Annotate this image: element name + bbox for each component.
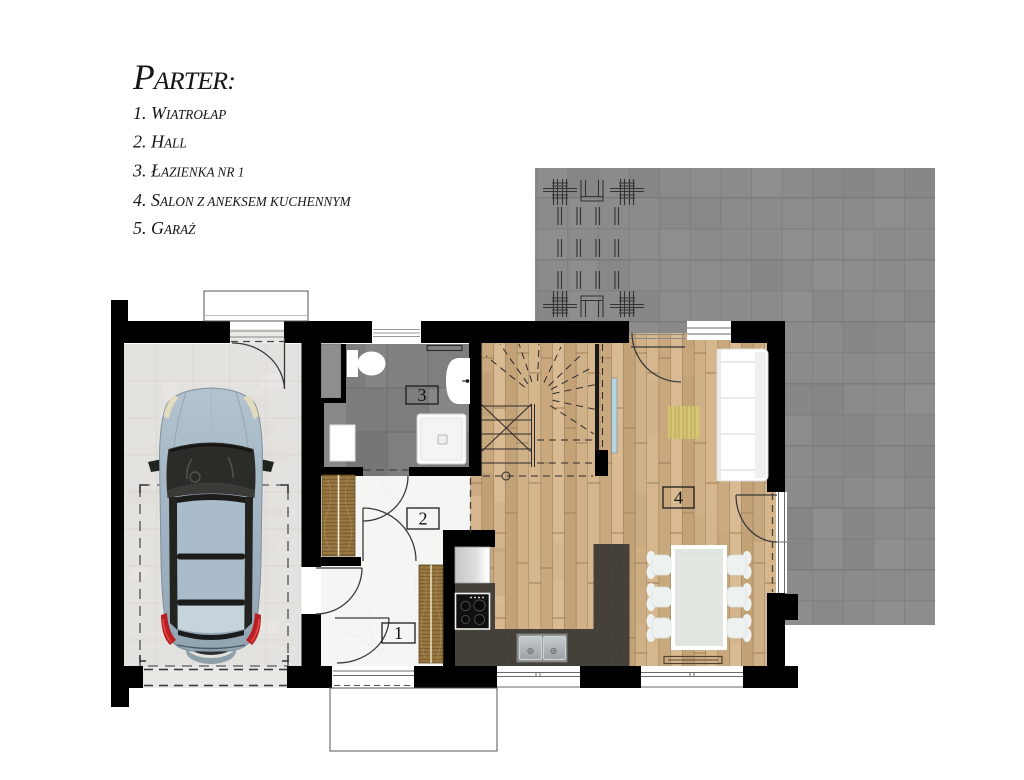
svg-text:3: 3 xyxy=(418,385,427,405)
svg-text:2: 2 xyxy=(419,509,428,529)
svg-text:1: 1 xyxy=(394,623,403,643)
svg-text:4: 4 xyxy=(674,488,683,508)
